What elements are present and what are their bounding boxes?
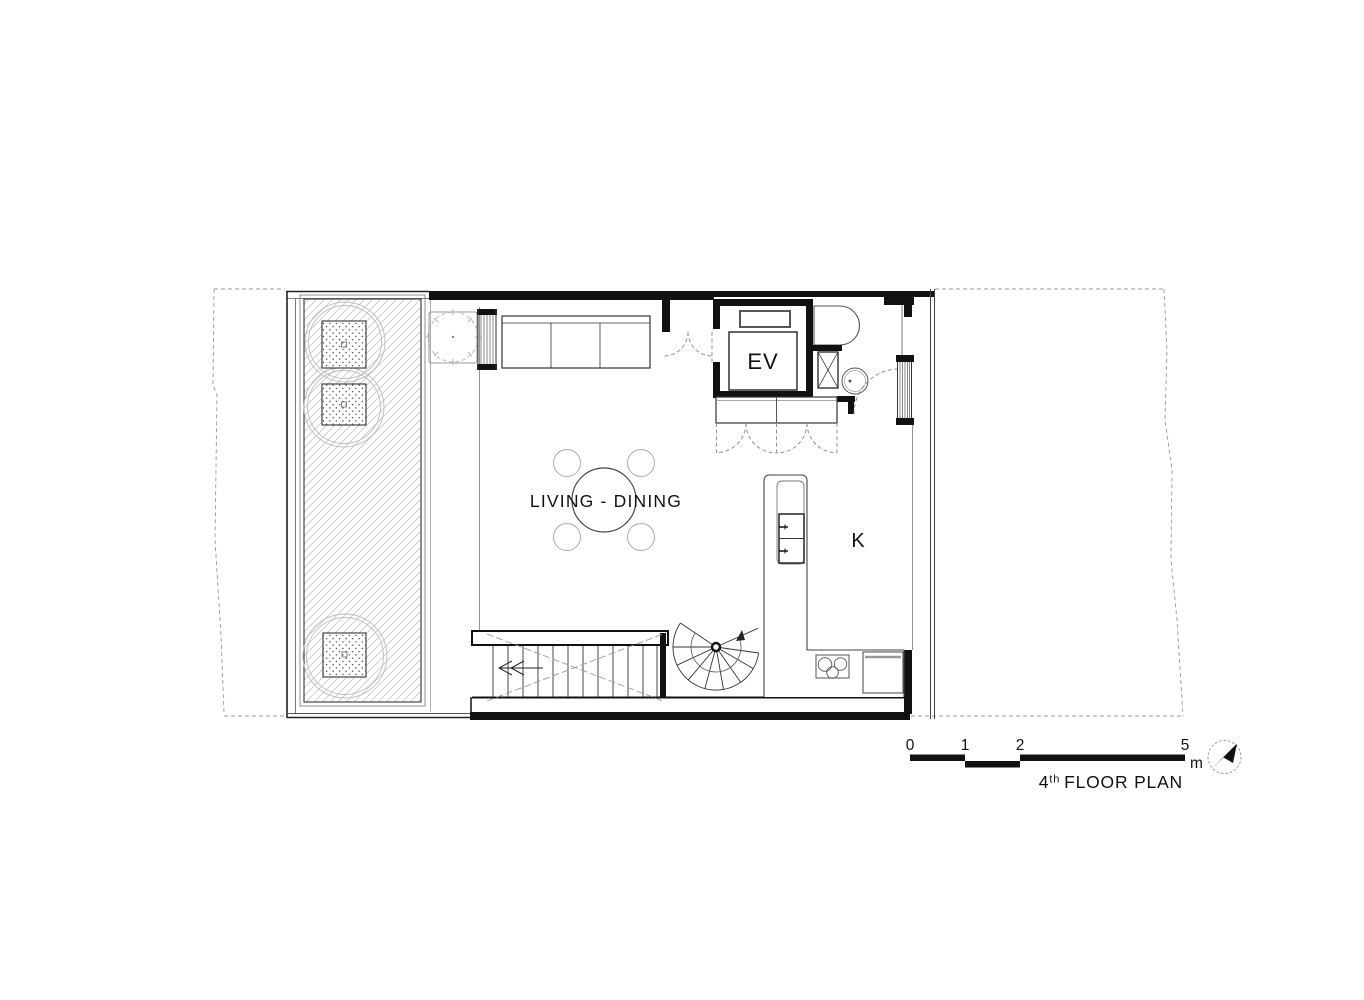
planter bbox=[323, 633, 366, 677]
dining-chair bbox=[554, 524, 581, 551]
dining-chair bbox=[628, 450, 655, 477]
room-label-kitchen: K bbox=[851, 530, 865, 552]
scale-unit-label: m bbox=[1190, 755, 1203, 772]
planter bbox=[322, 384, 366, 425]
spiral-pole bbox=[712, 643, 720, 651]
scale-tick-label: 5 bbox=[1181, 737, 1190, 754]
plan-title-ordinal: th bbox=[1049, 774, 1060, 786]
terrace bbox=[300, 295, 425, 706]
sofa bbox=[502, 316, 650, 368]
elevator-label: EV bbox=[747, 349, 778, 374]
room-label-living-dining: LIVING - DINING bbox=[530, 491, 682, 511]
bathtub bbox=[814, 306, 860, 345]
scale-tick-label: 0 bbox=[906, 737, 915, 754]
plan-title-number: 4 bbox=[1039, 772, 1050, 792]
scale-tick-label: 2 bbox=[1016, 737, 1025, 754]
dining-chair bbox=[628, 524, 655, 551]
plan-title-text: FLOOR PLAN bbox=[1064, 772, 1183, 792]
scale-tick-label: 1 bbox=[961, 737, 970, 754]
planter bbox=[322, 321, 366, 368]
floor-plan-canvas: EV bbox=[0, 0, 1364, 1000]
elevator-counterweight bbox=[740, 311, 790, 327]
floor-plan-page: EV bbox=[0, 0, 1364, 1000]
dining-chair bbox=[554, 450, 581, 477]
vent-shaft bbox=[818, 352, 838, 388]
